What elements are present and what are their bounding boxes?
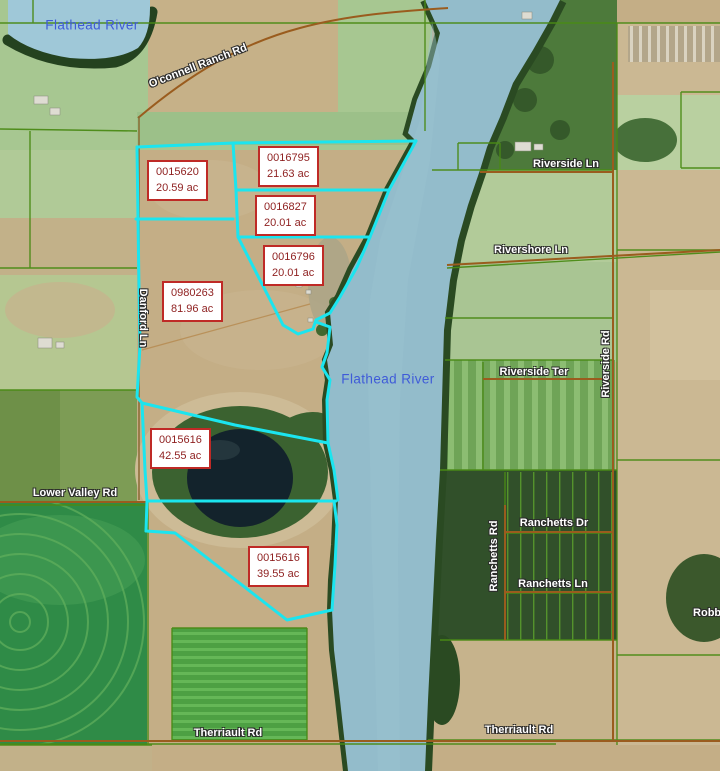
road-label-robbin: Robbin: [693, 607, 720, 619]
parcel-acreage: 39.55 ac: [257, 566, 300, 582]
parcel-acreage: 20.59 ac: [156, 180, 199, 196]
parcel-id: 0980263: [171, 285, 214, 301]
road-label-riverside-ln: Riverside Ln: [533, 158, 599, 170]
parcel-id: 0015616: [159, 432, 202, 448]
parcel-label-0980263: 0980263 81.96 ac: [162, 281, 223, 322]
road-label-danford-ln: Danford Ln: [137, 289, 149, 348]
road-label-therriault-rd-west: Therriault Rd: [194, 727, 262, 739]
irrigation-circle: [0, 498, 147, 746]
road-label-lower-valley-rd: Lower Valley Rd: [33, 487, 117, 499]
road-label-rivershore-ln: Rivershore Ln: [494, 244, 568, 256]
river-label-top: Flathead River: [45, 18, 138, 33]
road-label-ranchetts-dr: Ranchetts Dr: [520, 517, 588, 529]
parcel-label-0016827: 0016827 20.01 ac: [255, 195, 316, 236]
parcel-id: 0015620: [156, 164, 199, 180]
parcel-acreage: 20.01 ac: [264, 215, 307, 231]
parcel-label-0016795: 0016795 21.63 ac: [258, 146, 319, 187]
road-label-ranchetts-ln: Ranchetts Ln: [518, 578, 588, 590]
parcel-label-0015616-39: 0015616 39.55 ac: [248, 546, 309, 587]
parcel-acreage: 81.96 ac: [171, 301, 214, 317]
parcel-id: 0016796: [272, 249, 315, 265]
parcel-acreage: 21.63 ac: [267, 166, 310, 182]
parcel-id: 0016827: [264, 199, 307, 215]
parcel-label-0016796: 0016796 20.01 ac: [263, 245, 324, 286]
road-label-riverside-rd: Riverside Rd: [600, 330, 612, 397]
road-label-riverside-ter: Riverside Ter: [500, 366, 569, 378]
road-label-ranchetts-rd: Ranchetts Rd: [488, 521, 500, 592]
parcel-acreage: 42.55 ac: [159, 448, 202, 464]
parcel-label-0015616-42: 0015616 42.55 ac: [150, 428, 211, 469]
parcel-id: 0016795: [267, 150, 310, 166]
pond: [135, 392, 345, 548]
road-label-therriault-rd-east: Therriault Rd: [485, 724, 553, 736]
parcel-acreage: 20.01 ac: [272, 265, 315, 281]
map-canvas[interactable]: Flathead River Flathead River O'connell …: [0, 0, 720, 771]
parcel-id: 0015616: [257, 550, 300, 566]
parcel-label-0015620: 0015620 20.59 ac: [147, 160, 208, 201]
river-label-middle: Flathead River: [341, 372, 434, 387]
